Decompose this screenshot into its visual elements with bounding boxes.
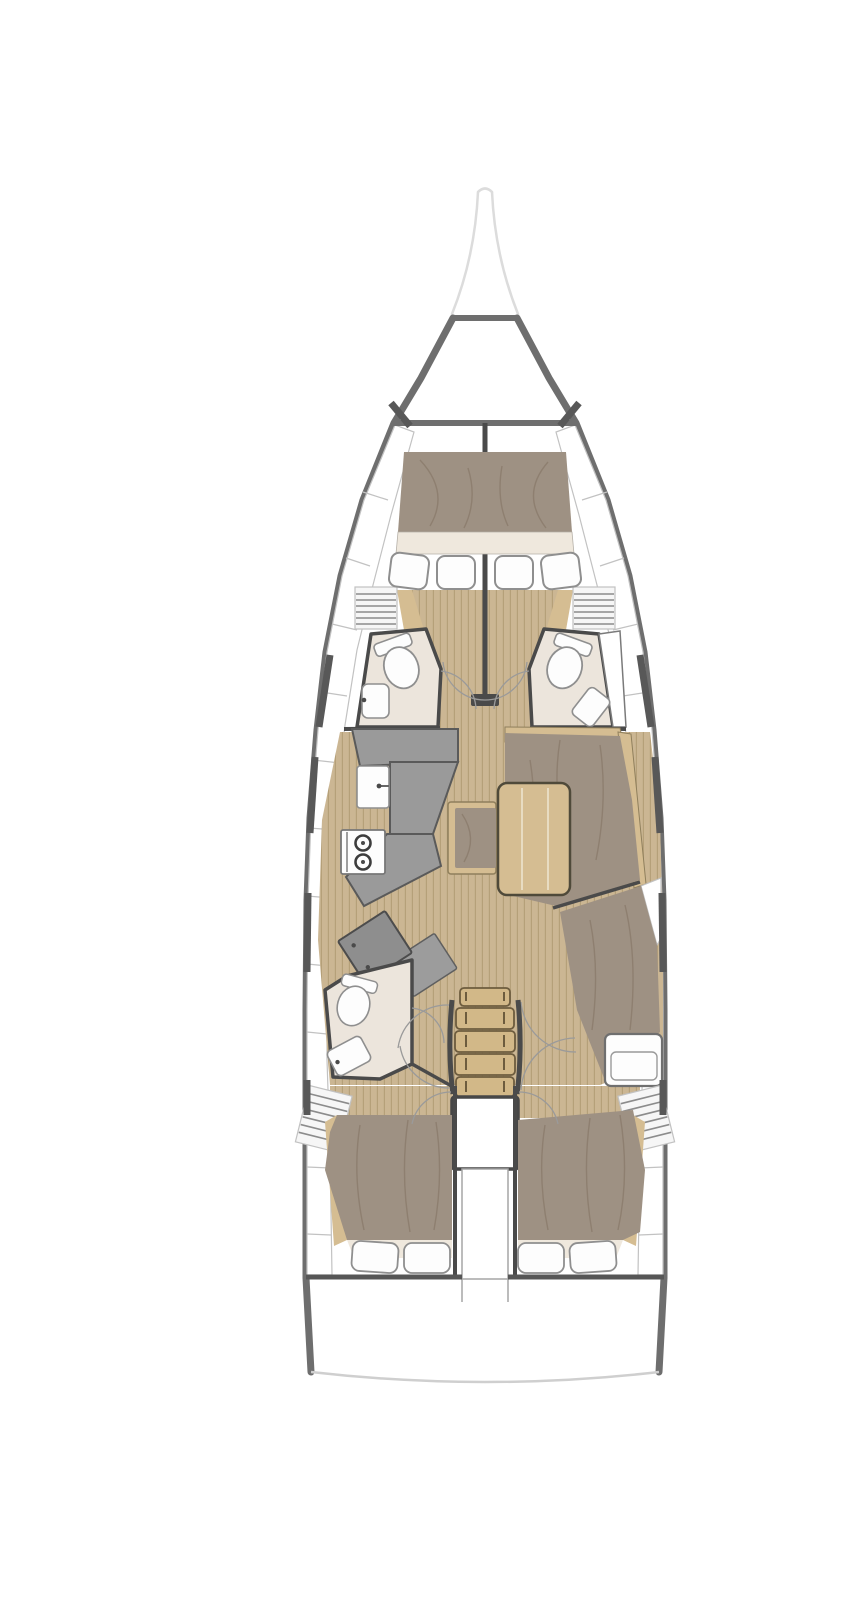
yacht-floorplan [0,0,842,1597]
floorplan-canvas [0,0,842,1597]
louver-vent-forward-starboard [573,587,615,629]
stove [341,830,385,874]
hull-window-starboard-3 [662,893,663,972]
cabin-seat [605,1034,662,1086]
engine-compartment [452,1097,518,1169]
bowsprit [452,189,518,315]
dining-table [498,783,570,895]
stair-steps [455,988,515,1097]
louver-vent-forward-port [355,587,397,629]
companionway-stairs [450,988,520,1097]
hull-window-port-2 [310,757,315,833]
hull-window-port-3 [307,893,308,972]
hull-window-starboard-2 [655,757,660,833]
saloon-bench [448,802,496,874]
